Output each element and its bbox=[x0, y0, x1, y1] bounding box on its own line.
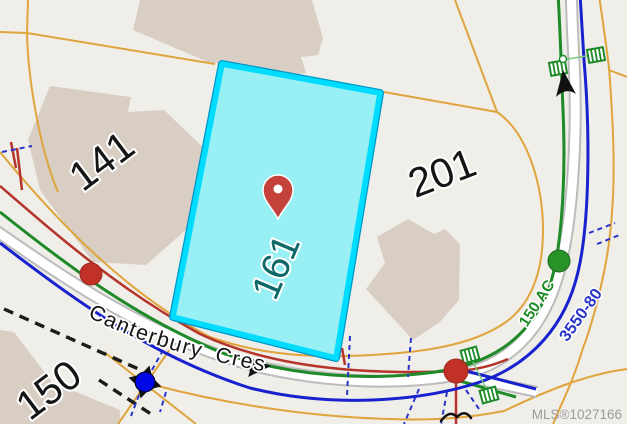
mls-watermark: MLS®1027166 bbox=[532, 407, 622, 422]
red-node-junction bbox=[444, 359, 468, 383]
pin-hole bbox=[274, 185, 283, 194]
junction-node bbox=[560, 56, 567, 63]
red-node-west bbox=[80, 263, 102, 285]
green-node bbox=[548, 250, 570, 272]
map-viewport[interactable]: 141 201 150 161 Canterbury Cres 150 AC 3… bbox=[0, 0, 627, 424]
